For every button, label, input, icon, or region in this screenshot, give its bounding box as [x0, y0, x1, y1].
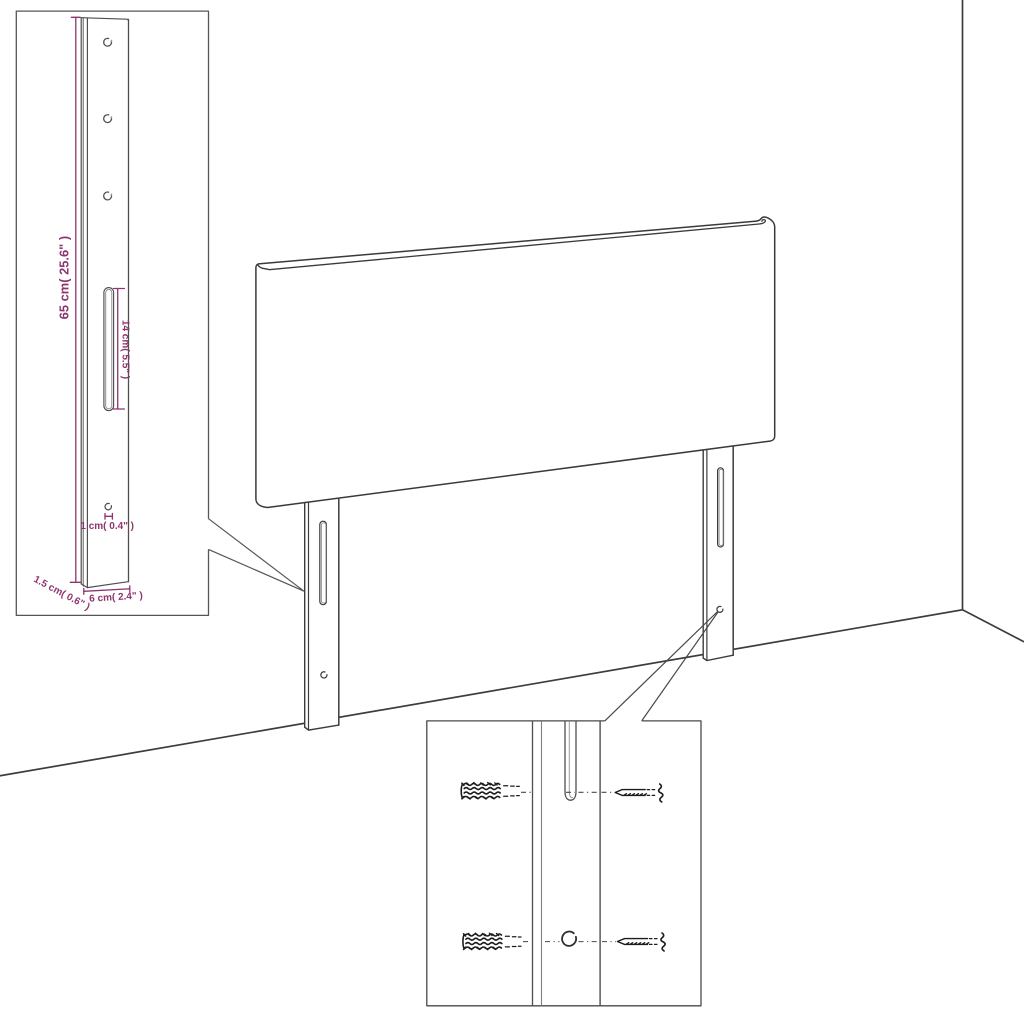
svg-text:14 cm( 5.5" ): 14 cm( 5.5" ) [119, 320, 130, 379]
svg-text:65 cm( 25.6" ): 65 cm( 25.6" ) [56, 236, 71, 320]
svg-text:1 cm( 0.4" ): 1 cm( 0.4" ) [80, 521, 134, 532]
